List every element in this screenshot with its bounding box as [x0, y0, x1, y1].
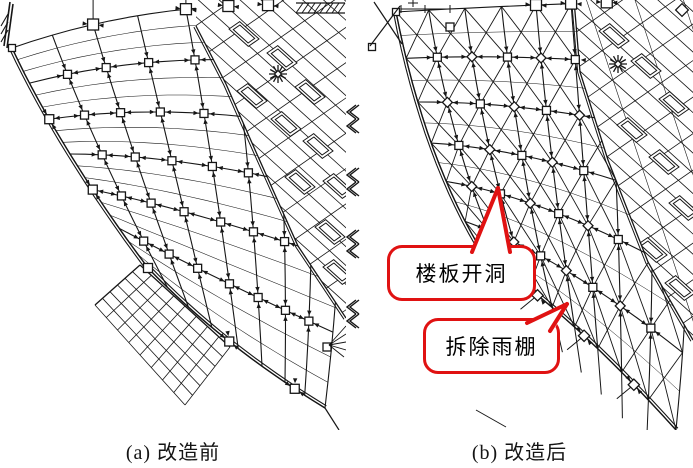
figure-renovation-comparison: (a) 改造前 楼板开洞 拆除雨棚 (b) 改造后 [0, 0, 693, 468]
callout-floor-opening: 楼板开洞 [387, 245, 536, 301]
panel-after: 楼板开洞 拆除雨棚 (b) 改造后 [346, 0, 693, 468]
plan-before-drawing [0, 0, 346, 430]
callout-canopy-removal-label: 拆除雨棚 [446, 331, 538, 361]
caption-before: (a) 改造前 [0, 436, 346, 465]
panel-before: (a) 改造前 [0, 0, 346, 468]
callout-floor-opening-label: 楼板开洞 [416, 258, 508, 288]
callout-canopy-removal: 拆除雨棚 [423, 318, 560, 374]
caption-after: (b) 改造后 [346, 436, 693, 465]
